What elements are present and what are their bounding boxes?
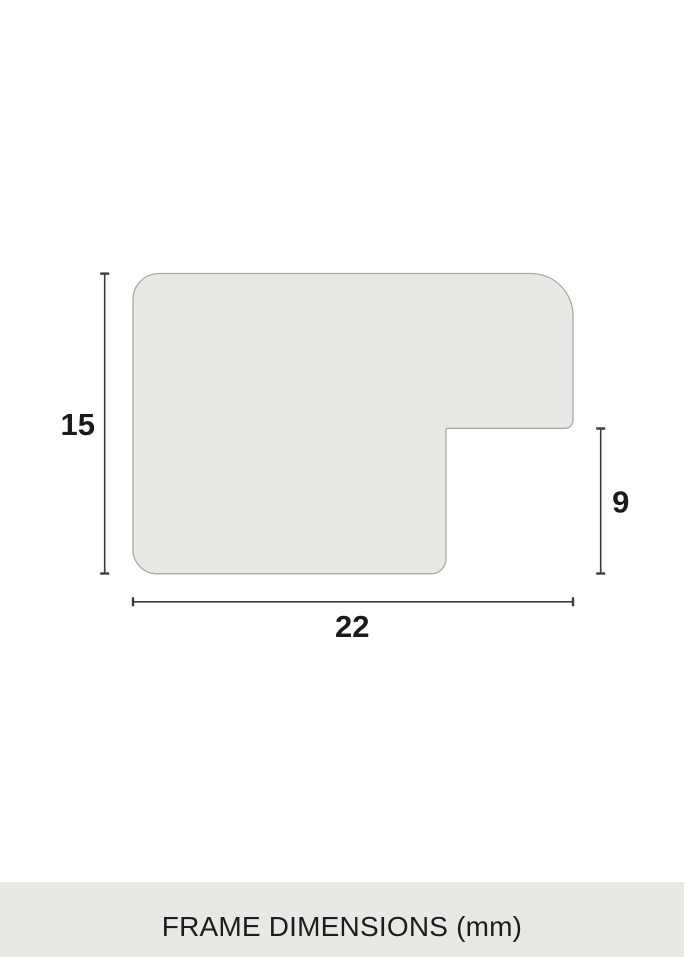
svg-text:9: 9 xyxy=(612,485,629,520)
svg-text:15: 15 xyxy=(60,407,94,442)
svg-text:22: 22 xyxy=(335,609,369,644)
